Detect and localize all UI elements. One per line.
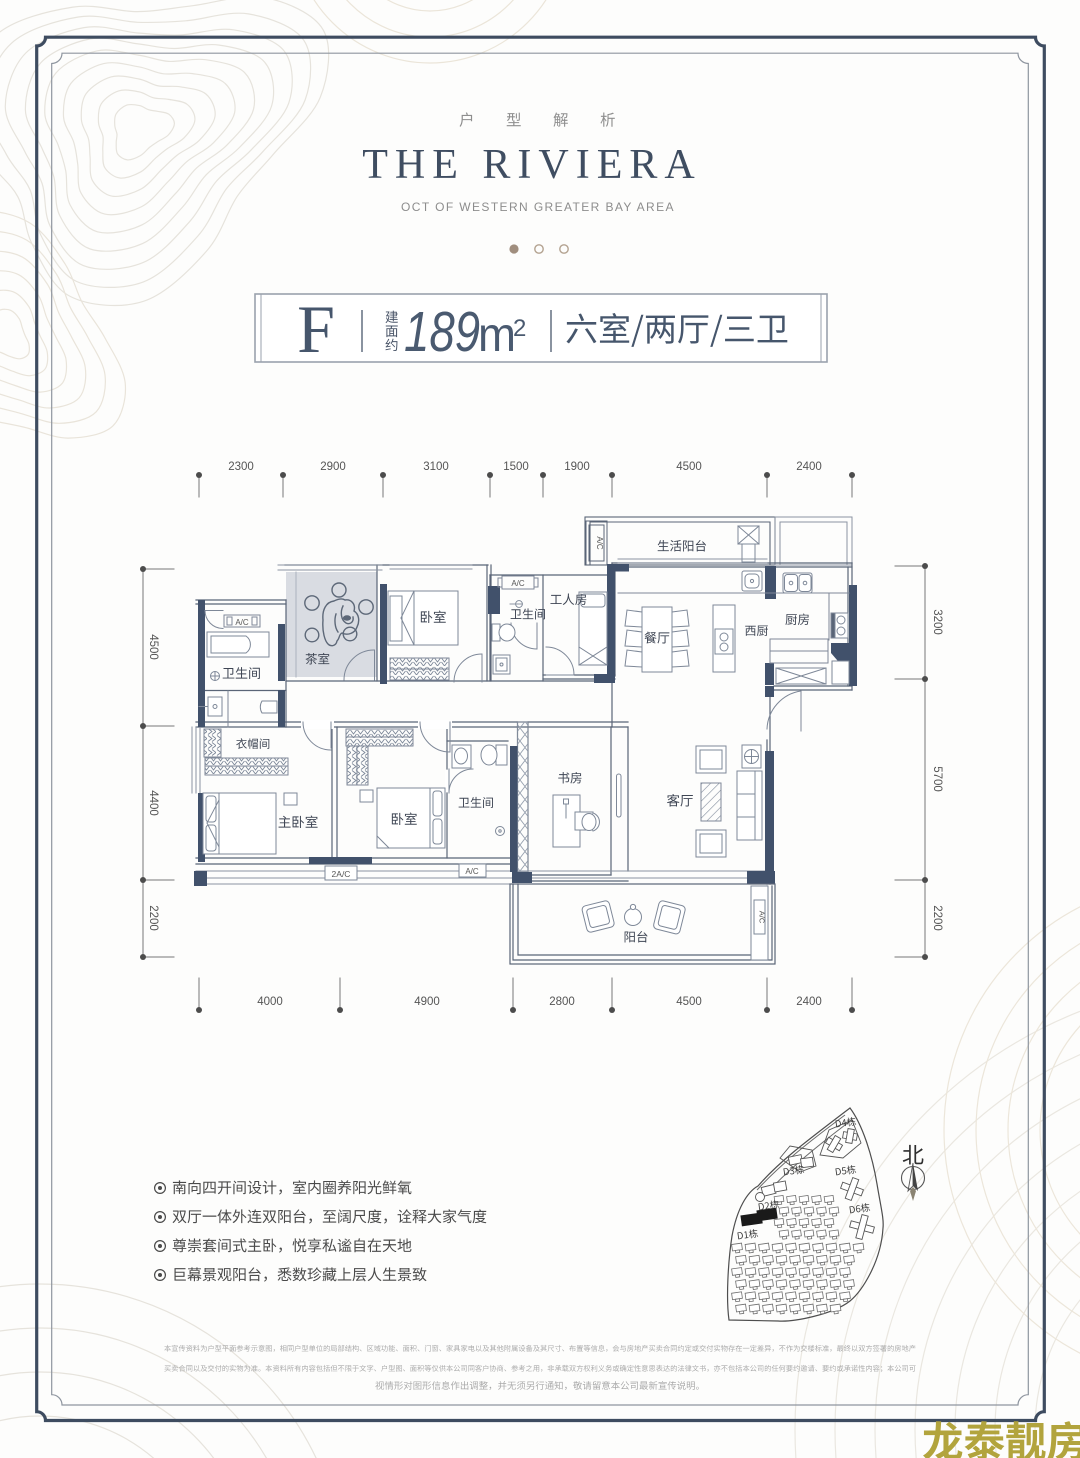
svg-text:A/C: A/C: [465, 867, 479, 876]
svg-text:4500: 4500: [676, 461, 702, 473]
svg-text:2200: 2200: [147, 905, 159, 931]
svg-text:3200: 3200: [931, 609, 943, 635]
svg-text:m: m: [478, 308, 516, 361]
svg-text:2200: 2200: [931, 905, 943, 931]
svg-text:F: F: [297, 291, 335, 367]
svg-text:OCT OF WESTERN GREATER BAY ARE: OCT OF WESTERN GREATER BAY AREA: [401, 200, 675, 214]
svg-text:THE RIVIERA: THE RIVIERA: [362, 142, 701, 188]
svg-text:2900: 2900: [320, 461, 346, 473]
svg-text:A/C: A/C: [235, 618, 249, 627]
svg-text:1500: 1500: [503, 461, 529, 473]
svg-text:2800: 2800: [549, 996, 575, 1008]
svg-text:4500: 4500: [676, 996, 702, 1008]
svg-text:189: 189: [404, 299, 480, 363]
svg-text:A/C: A/C: [511, 579, 525, 588]
svg-text:2: 2: [513, 315, 526, 342]
svg-text:2A/C: 2A/C: [332, 869, 351, 879]
svg-text:4500: 4500: [147, 634, 159, 660]
svg-text:2400: 2400: [796, 996, 822, 1008]
svg-text:A/C: A/C: [595, 536, 604, 550]
svg-text:2400: 2400: [796, 461, 822, 473]
svg-text:1900: 1900: [564, 461, 590, 473]
svg-text:A/C: A/C: [758, 911, 767, 924]
svg-text:3100: 3100: [423, 461, 449, 473]
svg-text:5700: 5700: [931, 766, 943, 792]
svg-text:4000: 4000: [257, 996, 283, 1008]
svg-text:2300: 2300: [228, 461, 254, 473]
svg-text:4900: 4900: [414, 996, 440, 1008]
svg-text:4400: 4400: [147, 790, 159, 816]
